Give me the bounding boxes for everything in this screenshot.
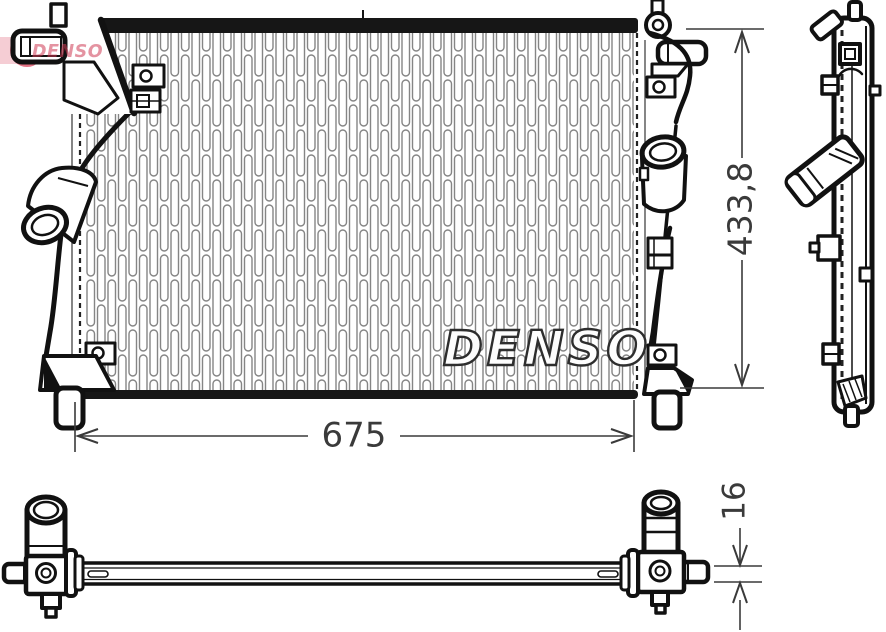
side-top-pin <box>849 2 861 20</box>
top-header-tank <box>88 18 638 33</box>
side-bottom-pin <box>845 406 858 426</box>
bottom-right-fitting <box>621 492 708 613</box>
side-tab-2 <box>818 236 840 260</box>
right-outlet-pipe <box>640 134 686 211</box>
bottom-left-mounting-pin <box>56 388 83 428</box>
bottom-header <box>78 390 638 399</box>
denso-logo-text: DENSO <box>32 42 103 62</box>
thickness-dimension: 16 <box>714 481 762 630</box>
top-right-mounting-arm <box>658 42 706 64</box>
side-square-fitting <box>840 44 860 64</box>
bottom-right-mounting-pin <box>654 392 680 428</box>
core-watermark-text: DENSO <box>443 321 651 377</box>
height-dimension-label: 433,8 <box>721 162 760 256</box>
left-inlet-pipe <box>19 168 96 249</box>
thickness-dimension-label: 16 <box>717 481 753 520</box>
width-dimension: 675 <box>75 400 634 456</box>
width-dimension-label: 675 <box>322 416 387 456</box>
bottom-bar <box>80 563 656 584</box>
bottom-view <box>4 492 708 617</box>
height-dimension: 433,8 <box>680 29 764 388</box>
radiator-technical-drawing: DENSO DENSO 675 433,8 <box>0 0 886 632</box>
bottom-left-fitting <box>4 497 83 617</box>
top-left-tab <box>51 4 66 26</box>
side-view <box>784 2 880 426</box>
